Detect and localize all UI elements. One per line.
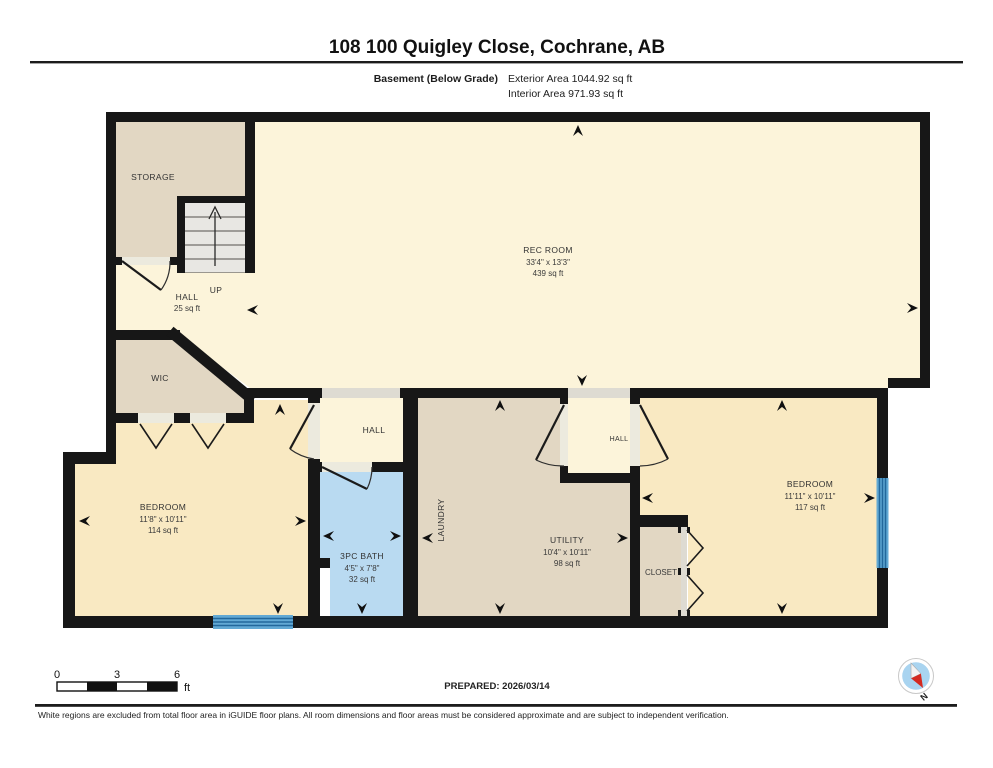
compass-north-label: N xyxy=(918,691,929,703)
wall-segment xyxy=(63,616,888,628)
hall-main-area: 25 sq ft xyxy=(174,304,201,313)
utility-label: UTILITY xyxy=(550,535,584,545)
rec-room-dims: 33'4" x 13'3" xyxy=(526,258,570,267)
hall-mid-label: HALL xyxy=(363,425,386,435)
header-divider xyxy=(30,61,963,63)
wall-opening xyxy=(138,413,174,423)
scale-tick-6: 6 xyxy=(174,669,180,681)
wall-opening xyxy=(630,404,640,466)
wall-segment xyxy=(177,196,245,203)
utility-area: 98 sq ft xyxy=(554,559,581,568)
floor-plan-sheet: 108 100 Quigley Close, Cochrane, AB Base… xyxy=(0,0,993,768)
rec-room-area: 439 sq ft xyxy=(533,269,564,278)
scale-tick-3: 3 xyxy=(114,669,120,681)
bath-label: 3PC BATH xyxy=(340,551,384,561)
bedroom-right-area: 117 sq ft xyxy=(795,503,826,512)
wic-label: WIC xyxy=(151,373,169,383)
prepared-date: PREPARED: 2026/03/14 xyxy=(444,681,550,692)
hall-small-label: HALL xyxy=(610,436,629,443)
wall-segment xyxy=(403,388,418,628)
wall-segment xyxy=(888,378,930,388)
bedroom-left-label: BEDROOM xyxy=(140,502,186,512)
scale-tick-0: 0 xyxy=(54,669,60,681)
floor-plan-page: 108 100 Quigley Close, Cochrane, AB Base… xyxy=(0,0,993,768)
utility-dims: 10'4" x 10'11" xyxy=(543,548,591,557)
rec-room-label: REC ROOM xyxy=(523,245,573,255)
hall-main-label: HALL xyxy=(176,292,199,302)
wall-segment xyxy=(106,112,116,456)
window xyxy=(877,478,889,568)
room-hall-mid xyxy=(320,398,403,462)
wall-opening xyxy=(122,257,170,265)
wall-opening xyxy=(190,413,226,423)
floor-label: Basement (Below Grade) xyxy=(374,73,498,85)
footer: White regions are excluded from total fl… xyxy=(35,704,957,720)
interior-area-label: Interior Area 971.93 sq ft xyxy=(508,88,623,100)
closet-label: CLOSET xyxy=(645,568,677,577)
scale-bar-segment xyxy=(147,682,177,691)
stairs-up-label: UP xyxy=(210,285,223,295)
wall-segment xyxy=(245,112,255,273)
laundry-label: LAUNDRY xyxy=(436,499,446,542)
wall-opening xyxy=(568,388,630,398)
closet-door-track xyxy=(681,527,687,616)
window xyxy=(213,615,293,629)
wall-segment xyxy=(177,196,185,273)
wall-segment xyxy=(320,558,330,568)
room-bath xyxy=(320,472,403,618)
bedroom-left-dims: 11'8" x 10'11" xyxy=(139,515,186,524)
page-title: 108 100 Quigley Close, Cochrane, AB xyxy=(329,37,665,58)
wall-opening xyxy=(322,388,400,398)
wall-segment xyxy=(640,515,688,527)
scale-bar: 0 3 6 ft xyxy=(54,669,190,694)
compass-icon: N xyxy=(899,659,934,703)
wall-opening xyxy=(560,404,568,466)
wall-segment xyxy=(560,473,640,483)
wall-segment xyxy=(106,112,930,122)
scale-bar-segment xyxy=(87,682,117,691)
wall-segment xyxy=(106,413,254,423)
bath-area: 32 sq ft xyxy=(349,575,376,584)
room-rec xyxy=(172,122,920,388)
bedroom-left-area: 114 sq ft xyxy=(148,526,179,535)
exterior-area-label: Exterior Area 1044.92 sq ft xyxy=(508,73,632,85)
footer-divider xyxy=(35,704,957,707)
disclaimer-text: White regions are excluded from total fl… xyxy=(38,710,729,720)
header: 108 100 Quigley Close, Cochrane, AB Base… xyxy=(30,37,963,100)
bedroom-right-label: BEDROOM xyxy=(787,479,833,489)
scale-unit-label: ft xyxy=(184,682,190,694)
storage-label: STORAGE xyxy=(131,172,175,182)
bath-dims: 4'5" x 7'8" xyxy=(345,564,380,573)
bedroom-right-dims: 11'11" x 10'11" xyxy=(785,492,836,501)
wall-segment xyxy=(63,452,75,628)
wall-segment xyxy=(920,112,930,388)
